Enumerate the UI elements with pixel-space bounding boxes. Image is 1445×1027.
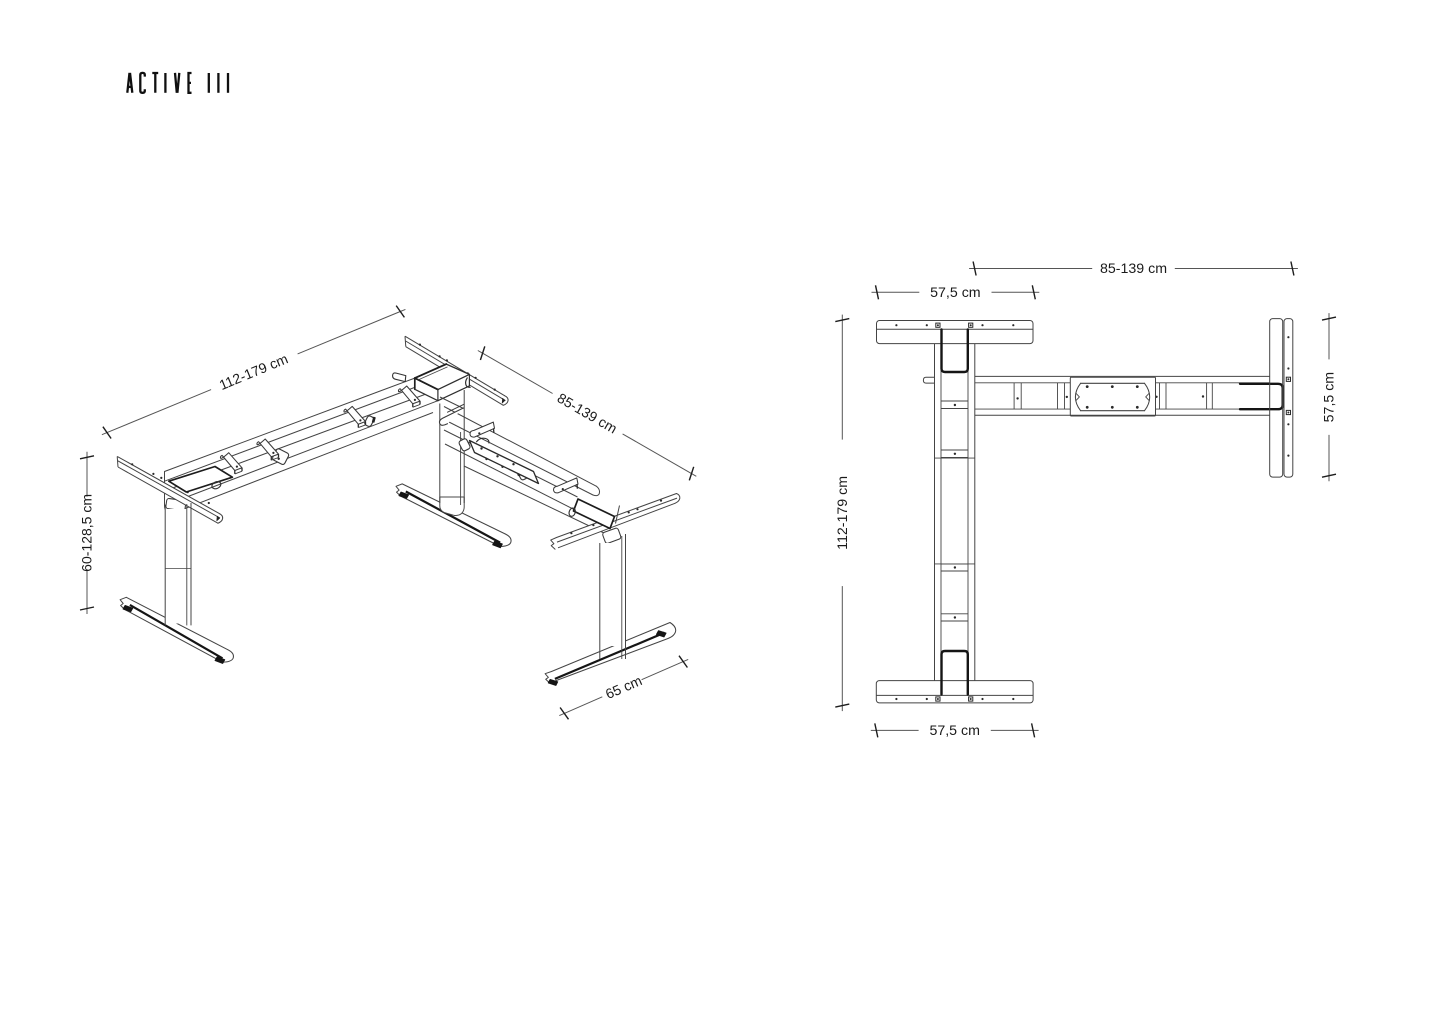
svg-text:112-179 cm: 112-179 cm: [835, 476, 851, 550]
svg-text:85-139 cm: 85-139 cm: [555, 390, 620, 437]
svg-text:112-179 cm: 112-179 cm: [217, 350, 290, 393]
svg-text:65 cm: 65 cm: [603, 672, 644, 702]
svg-text:57,5 cm: 57,5 cm: [929, 723, 979, 739]
svg-text:57,5 cm: 57,5 cm: [1322, 372, 1338, 422]
svg-text:60-128,5 cm: 60-128,5 cm: [79, 494, 95, 572]
svg-text:85-139 cm: 85-139 cm: [1100, 261, 1167, 277]
svg-text:57,5 cm: 57,5 cm: [930, 285, 980, 301]
